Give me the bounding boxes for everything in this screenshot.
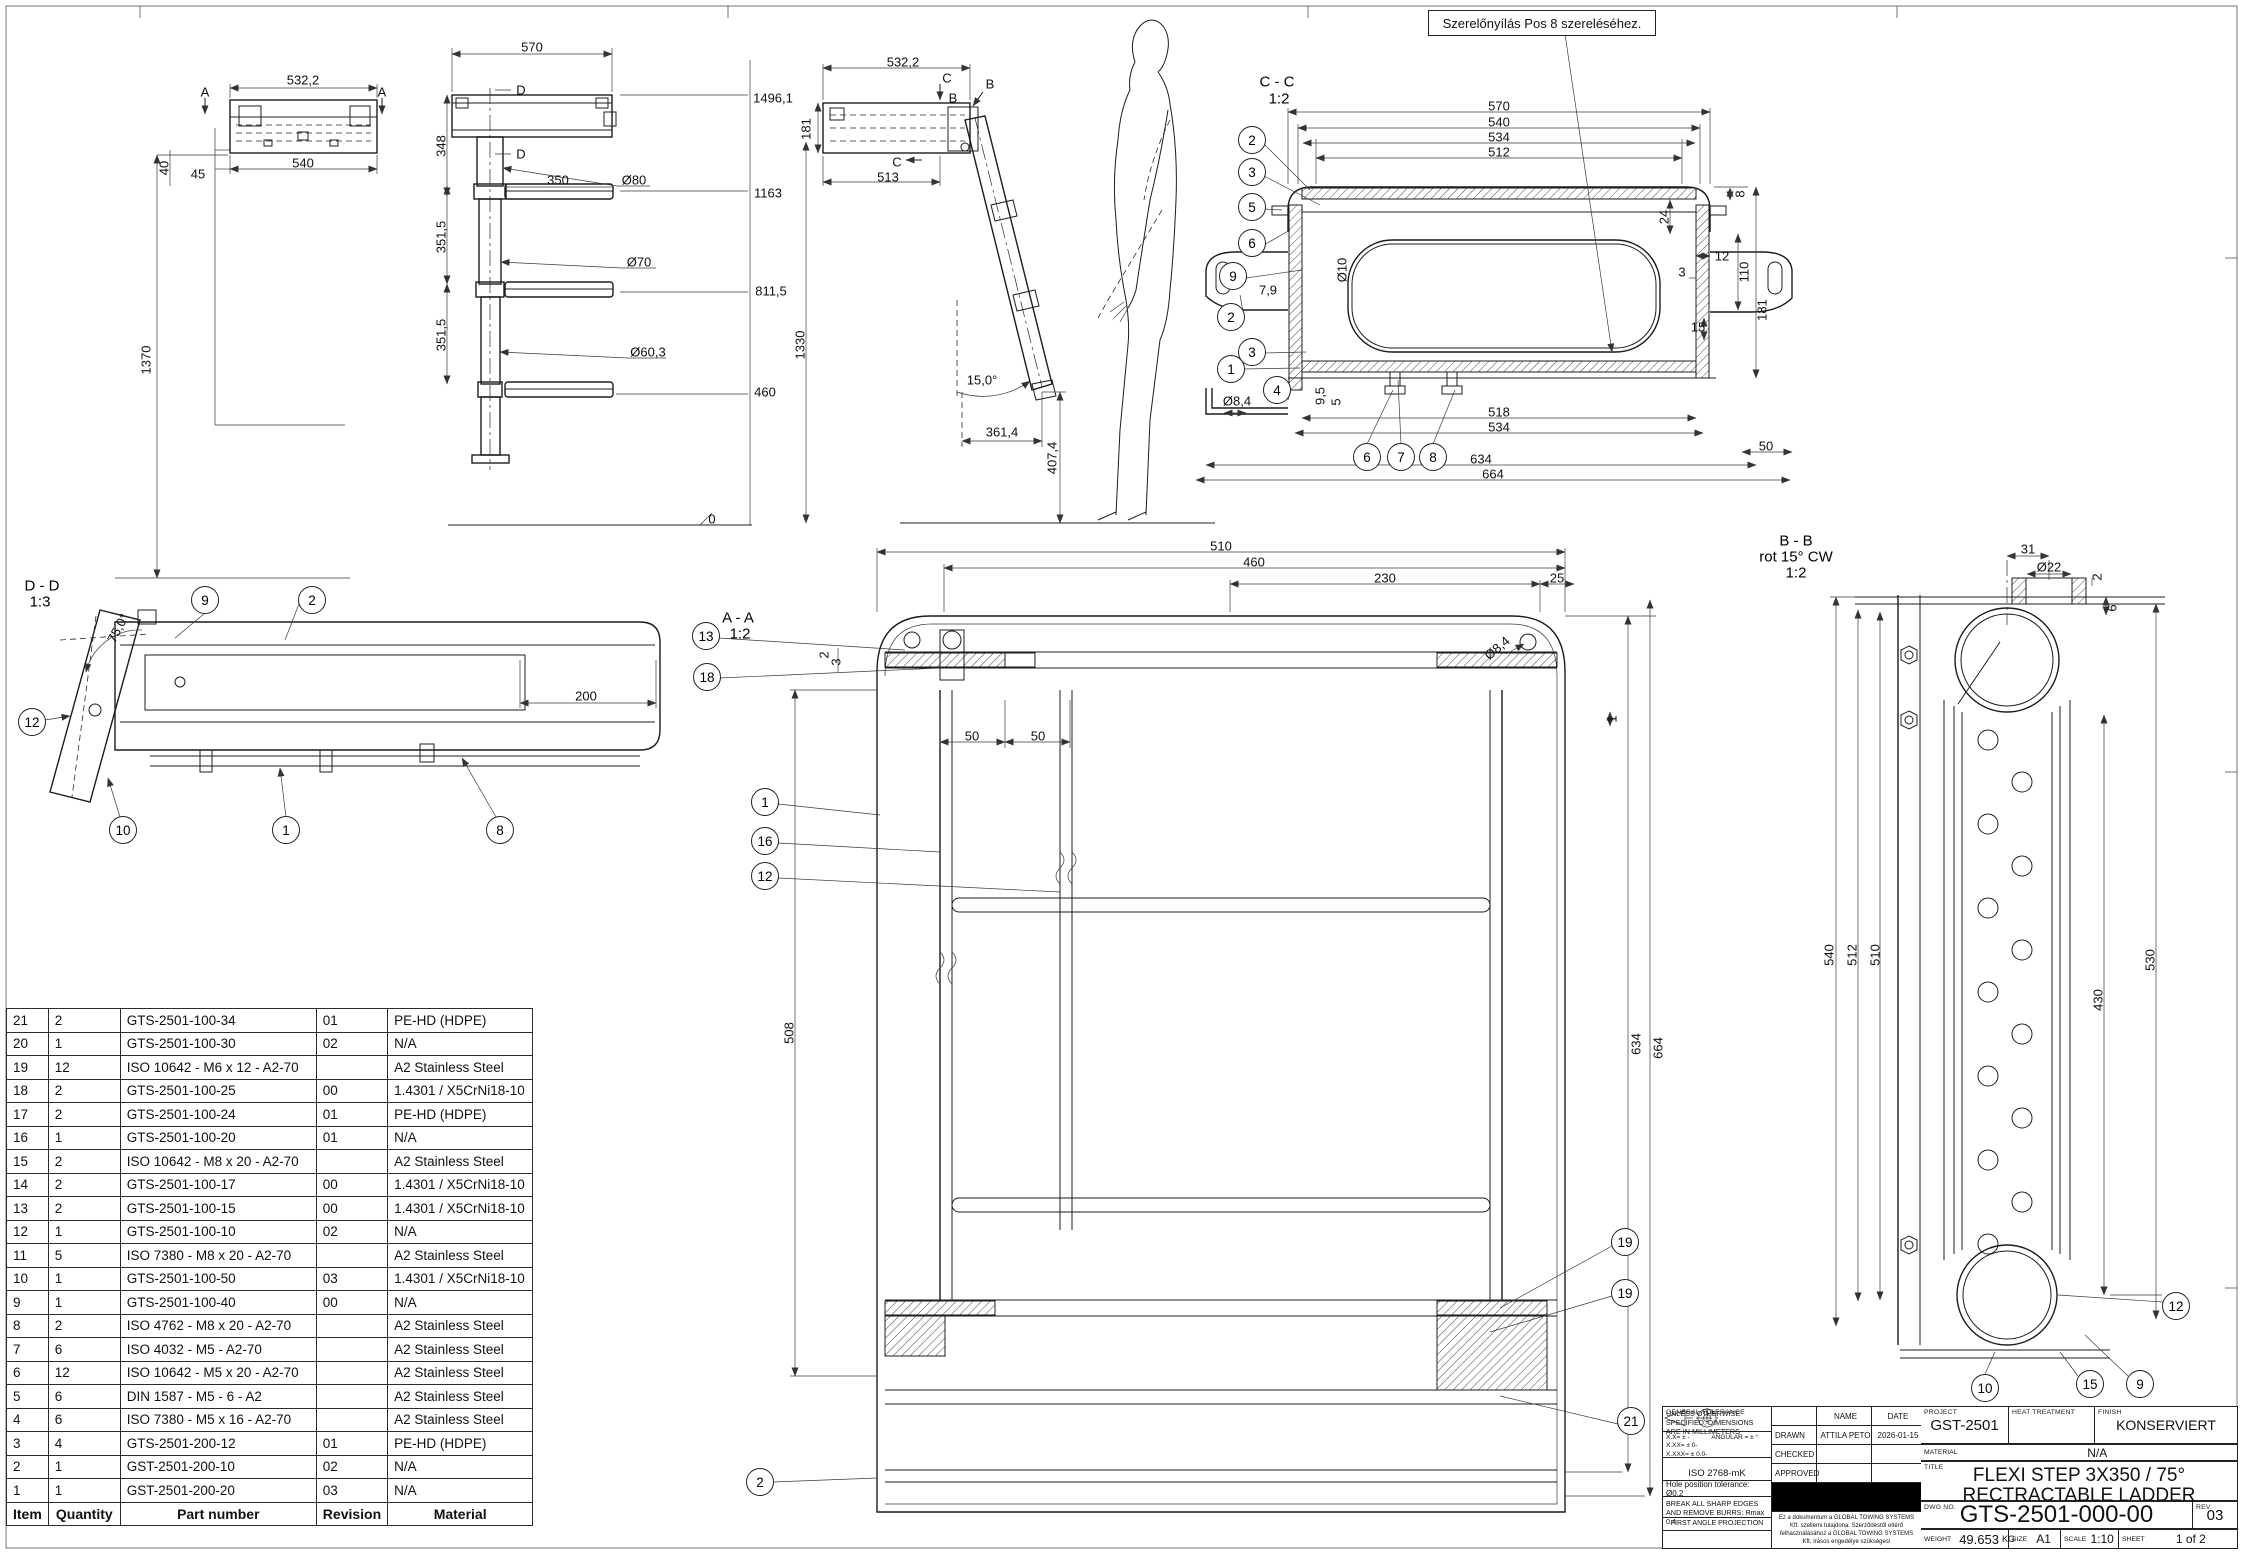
deburr-note: BREAK ALL SHARP EDGES AND REMOVE BURRS: … (1663, 1497, 1772, 1518)
table-cell: GTS-2501-100-20 (120, 1126, 316, 1150)
table-cell: GST-2501-200-20 (120, 1479, 316, 1503)
table-cell: 3 (7, 1432, 49, 1456)
table-cell: A2 Stainless Steel (388, 1385, 533, 1409)
table-cell: 16 (7, 1126, 49, 1150)
table-row: 11GST-2501-200-2003N/A (7, 1479, 533, 1503)
table-cell: 2 (7, 1455, 49, 1479)
table-cell: 1 (48, 1032, 120, 1056)
table-cell: 01 (316, 1103, 387, 1127)
table-cell: A2 Stainless Steel (388, 1150, 533, 1174)
drawing-title-line1: FLEXI STEP 3X350 / 75° (1921, 1466, 2237, 1486)
table-cell: 1 (48, 1455, 120, 1479)
table-cell: 13 (7, 1197, 49, 1221)
date-column-header: DATE (1872, 1407, 1921, 1425)
title-block-main: PROJECT GST-2501 HEAT TREATMENT FINISH K… (1921, 1407, 2237, 1548)
table-cell: 4 (48, 1432, 120, 1456)
table-row: 612ISO 10642 - M5 x 20 - A2-70A2 Stainle… (7, 1361, 533, 1385)
table-cell: 10 (7, 1267, 49, 1291)
view-section-cc (1196, 34, 1792, 480)
column-header: Quantity (48, 1502, 120, 1526)
rev-label: REV. (2196, 1504, 2212, 1511)
table-cell: 12 (7, 1220, 49, 1244)
table-cell: 6 (48, 1338, 120, 1362)
view-top-stowed (115, 84, 382, 578)
table-cell: 03 (316, 1267, 387, 1291)
view-section-dd (45, 604, 660, 817)
table-row: 212GTS-2501-100-3401PE-HD (HDPE) (7, 1009, 533, 1033)
table-row: 21GST-2501-200-1002N/A (7, 1455, 533, 1479)
material-label: MATERIAL (1924, 1449, 1958, 1456)
table-cell: 2 (48, 1150, 120, 1174)
table-cell (316, 1244, 387, 1268)
table-cell: 1.4301 / X5CrNi18-10 (388, 1267, 533, 1291)
table-cell: GTS-2501-100-25 (120, 1079, 316, 1103)
table-cell: A2 Stainless Steel (388, 1361, 533, 1385)
table-cell (316, 1056, 387, 1080)
dwg-no-value: GTS-2501-000-00 (1921, 1502, 2192, 1528)
view-front-deployed (447, 48, 806, 525)
table-row: 101GTS-2501-100-50031.4301 / X5CrNi18-10 (7, 1267, 533, 1291)
title-label: TITLE (1924, 1464, 1944, 1471)
table-row: 34GTS-2501-200-1201PE-HD (HDPE) (7, 1432, 533, 1456)
table-row: 56DIN 1587 - M5 - 6 - A2A2 Stainless Ste… (7, 1385, 533, 1409)
table-row: 82ISO 4762 - M8 x 20 - A2-70A2 Stainless… (7, 1314, 533, 1338)
title-block-general: UNLESS OTHERWISE SPECIFIED, DIMENSIONS A… (1663, 1407, 1772, 1548)
company-logo-redacted (1772, 1483, 1921, 1512)
table-cell: N/A (388, 1220, 533, 1244)
table-row: 172GTS-2501-100-2401PE-HD (HDPE) (7, 1103, 533, 1127)
finish-label: FINISH (2098, 1409, 2121, 1416)
table-cell: 6 (48, 1408, 120, 1432)
table-cell: GTS-2501-100-10 (120, 1220, 316, 1244)
table-cell: 1 (48, 1479, 120, 1503)
bom-header-row: ItemQuantityPart numberRevisionMaterial (7, 1502, 533, 1526)
material-value: N/A (2087, 1446, 2107, 1460)
table-cell: DIN 1587 - M5 - 6 - A2 (120, 1385, 316, 1409)
table-cell: 6 (7, 1361, 49, 1385)
table-cell: A2 Stainless Steel (388, 1056, 533, 1080)
table-cell (316, 1314, 387, 1338)
tolerance-xx: X.XX= ± 0- (1666, 1442, 1707, 1450)
dwg-no-label: DWG NO. (1924, 1504, 1956, 1511)
drawing-sheet: 532,2AA54045401370570348DD350Ø80351,5Ø70… (0, 0, 2243, 1554)
general-tolerance-value: ISO 2768-mK (1666, 1468, 1768, 1479)
table-cell: ISO 10642 - M5 x 20 - A2-70 (120, 1361, 316, 1385)
table-cell: 5 (48, 1244, 120, 1268)
table-cell: 1.4301 / X5CrNi18-10 (388, 1173, 533, 1197)
projection-label: FIRST ANGLE PROJECTION (1663, 1518, 1772, 1531)
scale-value: 1:10 (2090, 1532, 2113, 1546)
table-cell: A2 Stainless Steel (388, 1244, 533, 1268)
table-cell: GTS-2501-100-34 (120, 1009, 316, 1033)
table-cell: 00 (316, 1291, 387, 1315)
table-cell: 7 (7, 1338, 49, 1362)
table-cell: 2 (48, 1314, 120, 1338)
table-cell: ISO 4762 - M8 x 20 - A2-70 (120, 1314, 316, 1338)
table-cell: PE-HD (HDPE) (388, 1103, 533, 1127)
table-cell (316, 1385, 387, 1409)
table-cell: 2 (48, 1103, 120, 1127)
table-cell: 00 (316, 1197, 387, 1221)
table-cell: 18 (7, 1079, 49, 1103)
table-cell: A2 Stainless Steel (388, 1314, 533, 1338)
first-angle-projection-icon (1663, 1407, 1725, 1429)
sheet-value: 1 of 2 (2176, 1532, 2206, 1546)
table-cell (316, 1361, 387, 1385)
table-cell: 02 (316, 1032, 387, 1056)
table-cell: 03 (316, 1479, 387, 1503)
table-row: 161GTS-2501-100-2001N/A (7, 1126, 533, 1150)
table-cell: 15 (7, 1150, 49, 1174)
table-row: 132GTS-2501-100-15001.4301 / X5CrNi18-10 (7, 1197, 533, 1221)
table-cell: 2 (48, 1173, 120, 1197)
table-cell: 1 (48, 1267, 120, 1291)
table-cell: 1 (48, 1126, 120, 1150)
table-cell: 5 (7, 1385, 49, 1409)
table-row: 1912ISO 10642 - M6 x 12 - A2-70A2 Stainl… (7, 1056, 533, 1080)
tolerance-angular: ANGULAR = ± ° (1711, 1434, 1758, 1455)
approved-label: APPROVED (1772, 1464, 1817, 1482)
table-cell (316, 1408, 387, 1432)
assembly-note-text: Szerelőnyílás Pos 8 szereléséhez. (1443, 16, 1642, 31)
table-cell: A2 Stainless Steel (388, 1408, 533, 1432)
weight-value: 49.653 (1959, 1532, 1999, 1547)
column-header: Item (7, 1502, 49, 1526)
table-cell: GTS-2501-100-17 (120, 1173, 316, 1197)
table-cell: PE-HD (HDPE) (388, 1432, 533, 1456)
table-row: 152ISO 10642 - M8 x 20 - A2-70A2 Stainle… (7, 1150, 533, 1174)
view-side-stowed-person (818, 20, 1215, 523)
table-cell: 12 (48, 1361, 120, 1385)
table-row: 142GTS-2501-100-17001.4301 / X5CrNi18-10 (7, 1173, 533, 1197)
table-cell: GTS-2501-100-24 (120, 1103, 316, 1127)
table-cell: N/A (388, 1479, 533, 1503)
table-cell: 8 (7, 1314, 49, 1338)
table-cell: ISO 10642 - M8 x 20 - A2-70 (120, 1150, 316, 1174)
table-cell: GTS-2501-100-30 (120, 1032, 316, 1056)
table-cell: 14 (7, 1173, 49, 1197)
drawn-name: ATTILA PETO (1817, 1426, 1872, 1444)
table-cell: N/A (388, 1291, 533, 1315)
column-header: Material (388, 1502, 533, 1526)
table-cell: 01 (316, 1432, 387, 1456)
weight-label: WEIGHT (1924, 1536, 1951, 1543)
table-cell: ISO 4032 - M5 - A2-70 (120, 1338, 316, 1362)
view-section-aa (719, 548, 1656, 1512)
tolerance-x: X.X= ± - (1666, 1434, 1707, 1442)
table-cell (316, 1150, 387, 1174)
table-cell: 02 (316, 1455, 387, 1479)
table-cell: GST-2501-200-10 (120, 1455, 316, 1479)
table-cell: 1.4301 / X5CrNi18-10 (388, 1079, 533, 1103)
table-cell: 2 (48, 1079, 120, 1103)
table-cell: 01 (316, 1009, 387, 1033)
table-cell: 2 (48, 1009, 120, 1033)
table-cell: 01 (316, 1126, 387, 1150)
title-block-signoff: NAME DATE DRAWN ATTILA PETO 2026-01-15 C… (1772, 1407, 1921, 1548)
table-cell: GTS-2501-100-15 (120, 1197, 316, 1221)
table-cell: GTS-2501-200-12 (120, 1432, 316, 1456)
table-cell: ISO 10642 - M6 x 12 - A2-70 (120, 1056, 316, 1080)
table-cell: PE-HD (HDPE) (388, 1009, 533, 1033)
table-cell: ISO 7380 - M5 x 16 - A2-70 (120, 1408, 316, 1432)
column-header: Part number (120, 1502, 316, 1526)
table-cell: GTS-2501-100-50 (120, 1267, 316, 1291)
table-cell: N/A (388, 1455, 533, 1479)
table-row: 201GTS-2501-100-3002N/A (7, 1032, 533, 1056)
drawn-date: 2026-01-15 (1872, 1426, 1921, 1444)
checked-label: CHECKED (1772, 1445, 1817, 1463)
table-cell: 12 (48, 1056, 120, 1080)
title-block: UNLESS OTHERWISE SPECIFIED, DIMENSIONS A… (1662, 1406, 2238, 1549)
table-cell: 19 (7, 1056, 49, 1080)
table-cell (316, 1338, 387, 1362)
table-cell: GTS-2501-100-40 (120, 1291, 316, 1315)
table-cell: 1 (48, 1220, 120, 1244)
table-cell: 20 (7, 1032, 49, 1056)
table-cell: 17 (7, 1103, 49, 1127)
project-label: PROJECT (1924, 1409, 1957, 1416)
name-column-header: NAME (1817, 1407, 1872, 1425)
table-cell: 9 (7, 1291, 49, 1315)
table-row: 91GTS-2501-100-4000N/A (7, 1291, 533, 1315)
size-label: SIZE (2012, 1536, 2027, 1543)
table-cell: 02 (316, 1220, 387, 1244)
table-row: 115ISO 7380 - M8 x 20 - A2-70A2 Stainles… (7, 1244, 533, 1268)
table-cell: 00 (316, 1173, 387, 1197)
table-row: 182GTS-2501-100-25001.4301 / X5CrNi18-10 (7, 1079, 533, 1103)
hole-tolerance: Hole position tolerance: Ø0.2 (1663, 1481, 1772, 1497)
table-row: 46ISO 7380 - M5 x 16 - A2-70A2 Stainless… (7, 1408, 533, 1432)
size-value: A1 (2036, 1532, 2051, 1546)
column-header: Revision (316, 1502, 387, 1526)
sheet-label: SHEET (2122, 1536, 2145, 1543)
scale-label: SCALE (2064, 1536, 2086, 1543)
table-cell: N/A (388, 1032, 533, 1056)
bom-table: 212GTS-2501-100-3401PE-HD (HDPE)201GTS-2… (6, 1008, 533, 1526)
table-cell: 2 (48, 1197, 120, 1221)
ownership-note: Ez a dokumentum a GLOBAL TOWING SYSTEMS … (1772, 1512, 1921, 1548)
table-row: 121GTS-2501-100-1002N/A (7, 1220, 533, 1244)
table-cell: 1 (7, 1479, 49, 1503)
table-cell: N/A (388, 1126, 533, 1150)
table-cell: 21 (7, 1009, 49, 1033)
table-cell: A2 Stainless Steel (388, 1338, 533, 1362)
table-cell: ISO 7380 - M8 x 20 - A2-70 (120, 1244, 316, 1268)
table-cell: 6 (48, 1385, 120, 1409)
table-row: 76ISO 4032 - M5 - A2-70A2 Stainless Stee… (7, 1338, 533, 1362)
table-cell: 1 (48, 1291, 120, 1315)
drawn-label: DRAWN (1772, 1426, 1817, 1444)
table-cell: 4 (7, 1408, 49, 1432)
table-cell: 00 (316, 1079, 387, 1103)
assembly-note: Szerelőnyílás Pos 8 szereléséhez. (1428, 10, 1656, 36)
table-cell: 11 (7, 1244, 49, 1268)
view-section-bb (1830, 556, 2165, 1376)
heat-treatment-label: HEAT TREATMENT (2012, 1409, 2075, 1416)
table-cell: 1.4301 / X5CrNi18-10 (388, 1197, 533, 1221)
